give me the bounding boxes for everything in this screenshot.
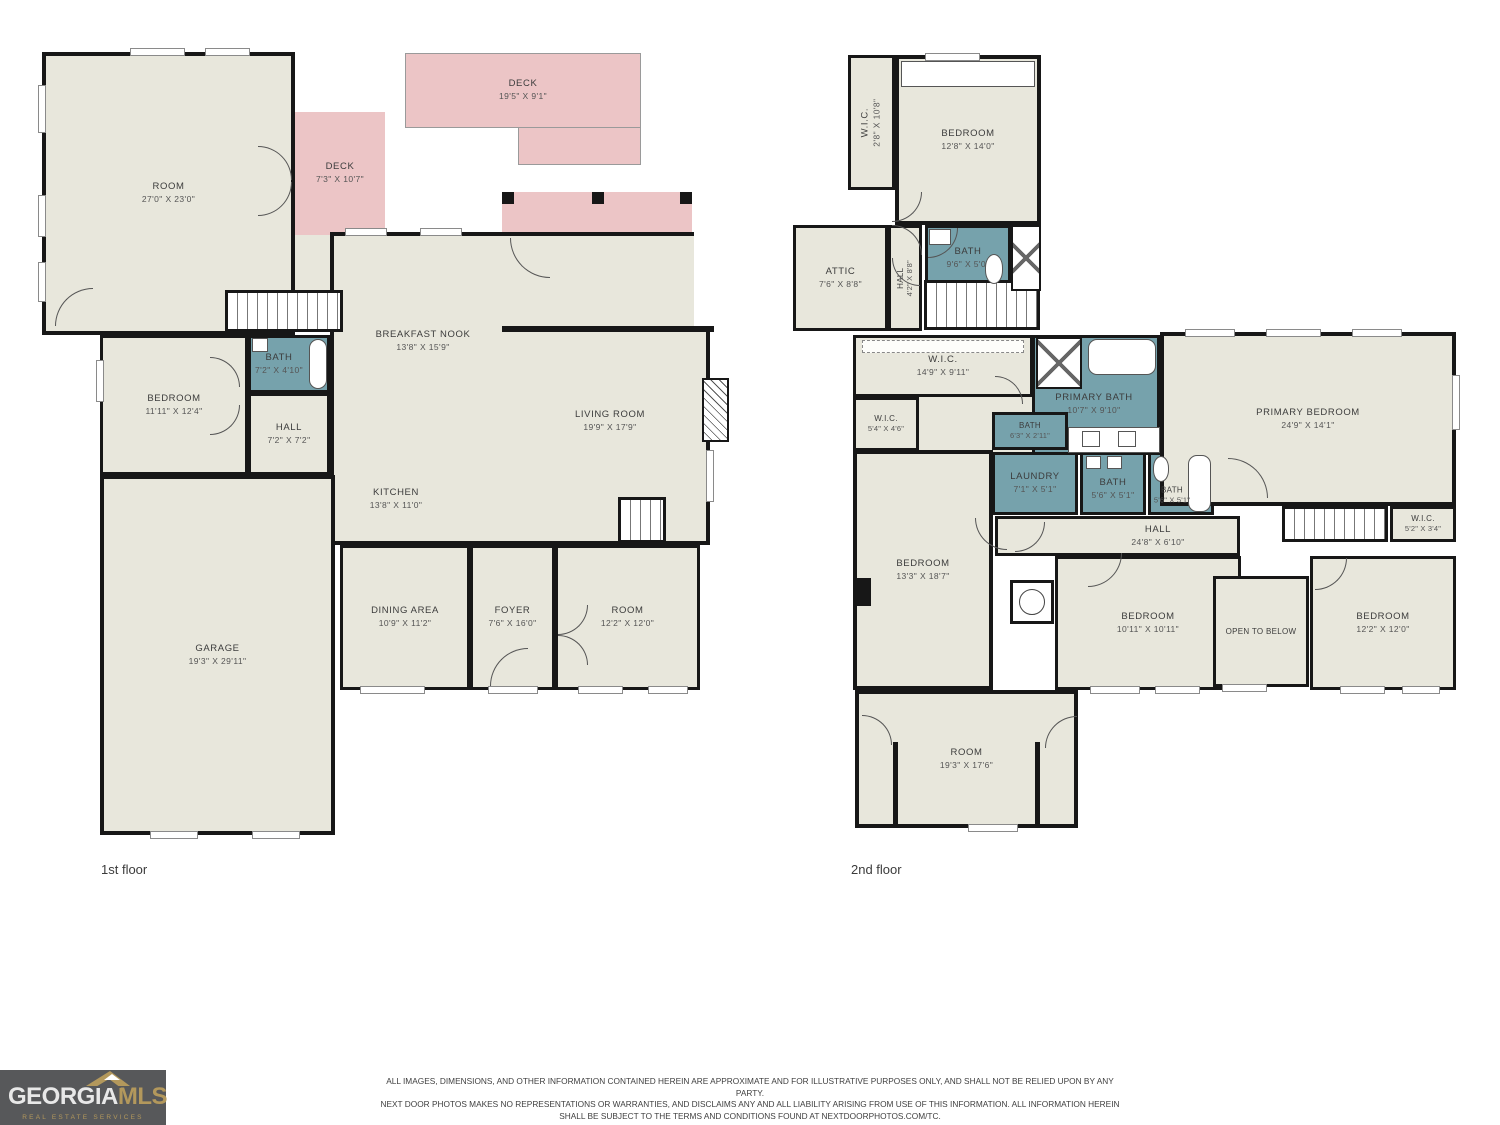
room-label: BEDROOM (941, 129, 994, 140)
room-label: PRIMARY BATH (1055, 393, 1132, 404)
deck-large: DECK 19'5" X 9'1" (405, 53, 641, 128)
room-dims: 13'8" X 11'0" (370, 501, 423, 510)
logo-brand: GEORGIAMLS (8, 1085, 167, 1109)
living-room-top-wall (502, 326, 714, 332)
room-label: BREAKFAST NOOK (376, 330, 471, 341)
laundry: LAUNDRY 7'1" X 5'1" (992, 452, 1078, 515)
window (968, 824, 1018, 832)
wic-small: W.I.C. 5'4" X 4'6" (853, 397, 919, 451)
window (578, 686, 623, 694)
logo-brand-secondary: MLS (118, 1083, 167, 1110)
staircase (225, 290, 343, 332)
window (345, 228, 387, 236)
wall-segment (1035, 742, 1040, 828)
window (38, 262, 46, 302)
room-bonus: ROOM 19'3" X 17'6" (855, 690, 1078, 828)
floorplan-page: DECK 19'5" X 9'1" DECK 7'3" X 10'7" ROOM… (0, 0, 1500, 1125)
room-dims: 5'6" X 5'1" (1154, 496, 1190, 504)
room-dims: 5'2" X 3'4" (1405, 525, 1441, 533)
room-dims: 7'6" X 16'0" (488, 619, 536, 628)
bathtub (309, 339, 327, 389)
deck-large-extension (518, 128, 641, 165)
patio-post (592, 192, 604, 204)
georgia-mls-logo: GEORGIAMLS REAL ESTATE SERVICES (0, 1070, 166, 1125)
room-label: BATH (265, 353, 292, 364)
primary-bath-label: PRIMARY BATH 10'7" X 9'10" (1055, 393, 1132, 415)
disclaimer-line: NEXT DOOR PHOTOS MAKES NO REPRESENTATION… (375, 1099, 1125, 1111)
window (1266, 329, 1321, 337)
kitchen-label: KITCHEN 13'8" X 11'0" (370, 488, 423, 510)
room-label: BATH (1099, 478, 1126, 489)
window (706, 450, 714, 502)
closet-shelf (862, 340, 1024, 353)
room-label: W.I.C. (861, 108, 872, 137)
room-label: KITCHEN (373, 488, 419, 499)
exterior-patch (694, 230, 716, 328)
room-dims: 12'2" X 12'0" (601, 619, 654, 628)
electrical-panel-icon (1019, 589, 1045, 615)
wall-segment (893, 742, 898, 828)
window (420, 228, 462, 236)
room-label: OPEN TO BELOW (1226, 627, 1297, 636)
room-dims: 7'3" X 10'7" (316, 175, 364, 184)
open-to-below: OPEN TO BELOW (1213, 576, 1309, 687)
room-dims: 2'8" X 10'8" (873, 98, 882, 146)
patio-post (502, 192, 514, 204)
deck-small: DECK 7'3" X 10'7" (295, 112, 385, 235)
floor-fill (295, 235, 335, 293)
wic-tall: W.I.C. 2'8" X 10'8" (848, 55, 895, 190)
window (648, 686, 688, 694)
logo-tagline: REAL ESTATE SERVICES (0, 1114, 166, 1121)
room-dims: 14'9" X 9'11" (917, 368, 970, 377)
room-label: DINING AREA (371, 606, 439, 617)
room-dims: 11'11" X 12'4" (145, 407, 202, 416)
closet (901, 61, 1035, 87)
window (150, 831, 198, 839)
room-dims: 13'3" X 18'7" (896, 572, 949, 581)
fireplace (702, 378, 729, 442)
room-dims: 24'8" X 6'10" (1131, 538, 1184, 547)
staircase (1282, 506, 1388, 542)
window (130, 48, 185, 56)
sink (1118, 431, 1136, 447)
room-dims: 7'6" X 8'8" (819, 280, 862, 289)
wic-stairs: W.I.C. 5'2" X 3'4" (1390, 506, 1456, 542)
patio-post (680, 192, 692, 204)
first-floor-label: 1st floor (101, 862, 147, 877)
room-dims: 5'4" X 4'6" (868, 425, 904, 433)
window (1090, 686, 1140, 694)
wall-segment (853, 578, 871, 606)
bathtub (1088, 339, 1156, 375)
sink (1107, 456, 1122, 469)
room-dims: 19'9" X 17'9" (583, 423, 636, 432)
bathtub (1188, 455, 1211, 512)
window (1452, 375, 1460, 430)
room-label: HALL (276, 423, 302, 434)
sink (252, 338, 268, 352)
second-floor-label: 2nd floor (851, 862, 902, 877)
room-label: W.I.C. (1411, 514, 1435, 523)
room-dims: 12'8" X 14'0" (941, 142, 994, 151)
breakfast-nook-label: BREAKFAST NOOK 13'8" X 15'9" (376, 330, 471, 352)
disclaimer-line: ALL IMAGES, DIMENSIONS, AND OTHER INFORM… (375, 1076, 1125, 1099)
window (205, 48, 250, 56)
room-label: LIVING ROOM (575, 410, 645, 421)
room-dims: 19'5" X 9'1" (499, 92, 547, 101)
room-label: BEDROOM (147, 394, 200, 405)
room-label: ROOM (153, 182, 185, 193)
room-label: DECK (326, 162, 355, 173)
sink (1086, 456, 1101, 469)
room-label: W.I.C. (874, 414, 898, 423)
room-label: BATH (954, 247, 981, 258)
room-label: BEDROOM (896, 559, 949, 570)
room-dims: 24'9" X 14'1" (1281, 421, 1334, 430)
room-label: DECK (509, 79, 538, 90)
room-dims: 19'3" X 17'6" (940, 761, 993, 770)
room-dims: 7'2" X 4'10" (255, 366, 303, 375)
room-dims: 12'2" X 12'0" (1356, 625, 1409, 634)
window (1340, 686, 1385, 694)
sink (1082, 431, 1100, 447)
room-label: LAUNDRY (1010, 472, 1059, 483)
bedroom-left: BEDROOM 13'3" X 18'7" (853, 450, 993, 690)
window (1352, 329, 1402, 337)
room-label: BEDROOM (1356, 612, 1409, 623)
disclaimer: ALL IMAGES, DIMENSIONS, AND OTHER INFORM… (375, 1076, 1125, 1122)
window (96, 360, 104, 402)
room-dims: 5'6" X 5'1" (1092, 491, 1135, 500)
room-label: BATH (1161, 485, 1183, 494)
window (360, 686, 425, 694)
living-room-label: LIVING ROOM 19'9" X 17'9" (575, 410, 645, 432)
hall-first-floor: HALL 7'2" X 7'2" (248, 393, 330, 475)
window (925, 53, 980, 61)
room-dims: 10'9" X 11'2" (379, 619, 432, 628)
room-dims: 13'8" X 15'9" (396, 343, 449, 352)
window (252, 831, 300, 839)
room-dims: 19'3" X 29'11" (189, 657, 247, 666)
room-label: ATTIC (826, 267, 856, 278)
room-dims: 6'3" X 2'11" (1010, 432, 1050, 440)
room-dims: 7'2" X 7'2" (268, 436, 311, 445)
room-label: W.I.C. (928, 355, 957, 366)
room-label: GARAGE (195, 644, 239, 655)
room-label: BEDROOM (1121, 612, 1174, 623)
room-label: ROOM (612, 606, 644, 617)
attic: ATTIC 7'6" X 8'8" (793, 225, 888, 331)
room-label: ROOM (951, 748, 983, 759)
garage: GARAGE 19'3" X 29'11" (100, 475, 335, 835)
bath-toilet-room: BATH 6'3" X 2'11" (992, 412, 1068, 450)
window (1155, 686, 1200, 694)
dining-area: DINING AREA 10'9" X 11'2" (340, 545, 470, 690)
hall-main-label: HALL 24'8" X 6'10" (1131, 525, 1184, 547)
window (38, 195, 46, 237)
room-dims: 10'7" X 9'10" (1067, 406, 1120, 415)
window (488, 686, 538, 694)
window (1222, 684, 1267, 692)
room-label: FOYER (495, 606, 531, 617)
toilet (1153, 456, 1169, 482)
room-dims: 10'11" X 10'11" (1117, 625, 1179, 634)
disclaimer-line: SHALL BE SUBJECT TO THE TERMS AND CONDIT… (375, 1111, 1125, 1123)
window (1185, 329, 1235, 337)
room-dims: 7'1" X 5'1" (1014, 485, 1057, 494)
room-dims: 9'6" X 5'0" (947, 260, 990, 269)
staircase (618, 497, 666, 543)
window (1402, 686, 1440, 694)
shower (1011, 225, 1041, 291)
window (38, 85, 46, 133)
room-label: HALL (1145, 525, 1171, 536)
room-label: BATH (1019, 421, 1041, 430)
roof-icon-peak (104, 1074, 120, 1080)
bath-hall-b-label: BATH 5'6" X 5'1" (1154, 485, 1190, 504)
shower (1036, 337, 1082, 389)
toilet (985, 254, 1003, 284)
roof-icon-cut (94, 1079, 121, 1088)
room-label: PRIMARY BEDROOM (1256, 408, 1360, 419)
room-dims: 27'0" X 23'0" (142, 195, 195, 204)
